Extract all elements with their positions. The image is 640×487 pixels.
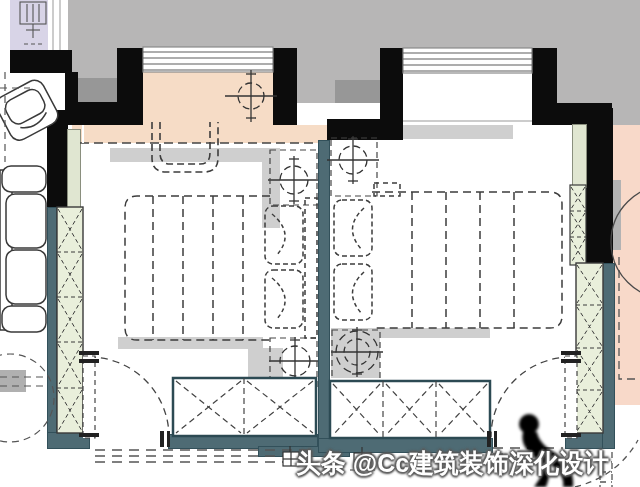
- wardrobe-bottom-left-room: [173, 378, 316, 436]
- sofa-outside: [0, 166, 46, 332]
- door-left-room: [79, 351, 170, 447]
- corridor-fixture-symbol: [20, 2, 46, 44]
- light-right-room-top: [327, 136, 379, 184]
- bed-left: [125, 196, 317, 340]
- window-left: [143, 47, 273, 72]
- ceiling-light-balcony: [225, 70, 277, 122]
- adjacent-room-graphics: [611, 185, 640, 379]
- wardrobe-right-wall-lower: [576, 263, 603, 433]
- plan-linework: [0, 0, 640, 487]
- floor-plan: 头条 @Cc建筑装饰深化设计: [0, 0, 640, 487]
- light-left-room-top: [268, 156, 318, 204]
- watermark-text: 头条 @Cc建筑装饰深化设计: [296, 446, 626, 481]
- window-seat-element: [152, 122, 218, 172]
- wardrobe-left-wall: [57, 207, 83, 433]
- armchair-outside: [0, 77, 61, 144]
- bed-right: [334, 183, 562, 328]
- wardrobe-bottom-right-room: [330, 381, 490, 438]
- window-right: [403, 48, 532, 121]
- wardrobe-right-wall-upper: [570, 185, 586, 265]
- nightstands: [270, 138, 380, 388]
- light-right-room-bottom: [331, 327, 383, 377]
